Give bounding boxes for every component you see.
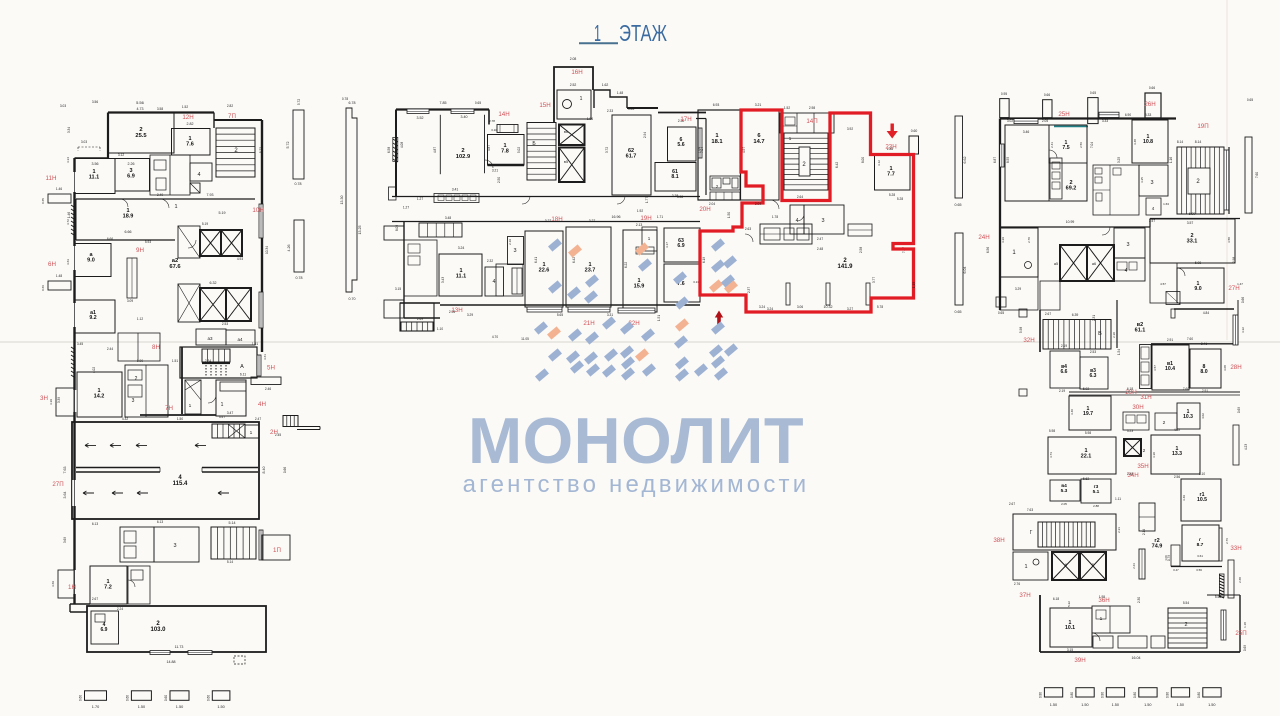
svg-text:2: 2: [135, 376, 138, 382]
svg-text:а4: а4: [237, 337, 243, 342]
svg-text:2.31: 2.31: [1092, 315, 1096, 321]
svg-text:11.1: 11.1: [456, 274, 466, 280]
svg-text:агентство недвижимости: агентство недвижимости: [463, 471, 810, 498]
svg-text:0.65: 0.65: [955, 310, 962, 314]
svg-text:0.80: 0.80: [1165, 692, 1169, 698]
svg-text:3.49: 3.49: [1182, 495, 1186, 501]
svg-text:1.95: 1.95: [1099, 595, 1105, 599]
svg-text:2.88: 2.88: [1093, 504, 1099, 508]
svg-text:3.15: 3.15: [395, 287, 401, 291]
svg-text:11.1: 11.1: [89, 175, 99, 181]
svg-text:3.61: 3.61: [1197, 554, 1203, 558]
svg-text:14.88: 14.88: [167, 660, 176, 664]
svg-text:8.7: 8.7: [1197, 542, 1204, 548]
svg-text:2.13: 2.13: [636, 223, 643, 227]
svg-text:1: 1: [1024, 564, 1027, 570]
svg-text:6.04: 6.04: [963, 267, 967, 274]
svg-text:0.69: 0.69: [1237, 407, 1241, 413]
svg-text:а3: а3: [207, 336, 213, 341]
svg-text:2: 2: [1184, 622, 1187, 628]
svg-text:3.57: 3.57: [1149, 219, 1155, 223]
svg-text:0.78: 0.78: [295, 182, 302, 186]
svg-text:3.63: 3.63: [66, 259, 70, 265]
svg-text:7.6: 7.6: [186, 142, 194, 148]
svg-text:2.04: 2.04: [709, 202, 715, 206]
svg-text:0.66: 0.66: [41, 285, 45, 291]
svg-text:39Н: 39Н: [1074, 657, 1085, 664]
svg-text:2.24: 2.24: [117, 607, 123, 611]
svg-text:5.93: 5.93: [145, 240, 151, 244]
svg-text:9Н: 9Н: [136, 247, 144, 254]
svg-text:21Н: 21Н: [583, 320, 594, 327]
svg-text:2.14: 2.14: [1142, 529, 1146, 535]
svg-text:5.14: 5.14: [227, 560, 233, 564]
svg-text:7.60: 7.60: [1183, 387, 1189, 391]
svg-text:19П: 19П: [1197, 123, 1208, 130]
svg-text:6Н: 6Н: [48, 261, 56, 268]
svg-text:10.4: 10.4: [1165, 366, 1175, 372]
svg-text:3.08: 3.08: [1223, 365, 1227, 371]
svg-text:0.66: 0.66: [1149, 86, 1155, 90]
svg-text:1.50: 1.50: [1050, 703, 1057, 707]
svg-text:4Н: 4Н: [258, 401, 266, 408]
svg-text:1: 1: [580, 96, 583, 102]
svg-text:3.33: 3.33: [1145, 113, 1152, 117]
svg-text:61.7: 61.7: [626, 154, 637, 160]
svg-text:2.19: 2.19: [508, 239, 512, 245]
svg-text:0.65: 0.65: [1247, 98, 1253, 102]
svg-text:10.8: 10.8: [1143, 139, 1153, 145]
svg-text:0.65: 0.65: [475, 101, 481, 105]
svg-text:Г: Г: [1030, 530, 1033, 536]
svg-text:5.19: 5.19: [219, 211, 226, 215]
svg-text:0.69: 0.69: [1243, 645, 1247, 651]
svg-text:5.72: 5.72: [259, 147, 263, 153]
svg-text:1: 1: [174, 204, 177, 210]
svg-text:4: 4: [197, 172, 200, 178]
svg-text:14.7: 14.7: [753, 139, 764, 145]
svg-text:2.67: 2.67: [1045, 312, 1051, 316]
svg-text:3.17: 3.17: [665, 242, 669, 248]
svg-text:26Н: 26Н: [1144, 101, 1155, 108]
svg-text:0.65: 0.65: [41, 198, 45, 204]
svg-text:3.48: 3.48: [1133, 139, 1137, 145]
svg-text:3: 3: [1150, 180, 1153, 186]
svg-text:3.29: 3.29: [1015, 287, 1021, 291]
svg-text:3: 3: [821, 218, 824, 224]
svg-text:25Н: 25Н: [1058, 111, 1069, 118]
svg-text:7.63: 7.63: [63, 467, 67, 474]
svg-text:67.6: 67.6: [169, 264, 181, 270]
svg-text:3.29: 3.29: [1001, 237, 1005, 243]
svg-text:2.48: 2.48: [817, 247, 823, 251]
svg-text:102.9: 102.9: [456, 154, 471, 160]
svg-text:14.2: 14.2: [94, 394, 105, 400]
svg-text:3.40: 3.40: [461, 115, 468, 119]
svg-text:2.68: 2.68: [1238, 577, 1242, 583]
svg-text:0.66: 0.66: [1241, 297, 1245, 303]
svg-text:2.67: 2.67: [92, 597, 98, 601]
svg-text:4.23: 4.23: [1244, 444, 1248, 450]
svg-text:3.03: 3.03: [60, 104, 66, 108]
svg-text:5.02: 5.02: [517, 147, 521, 153]
svg-text:13.25: 13.25: [358, 226, 362, 235]
svg-text:4.57: 4.57: [1160, 282, 1166, 286]
svg-text:3: 3: [173, 543, 176, 549]
svg-text:25.5: 25.5: [135, 133, 147, 139]
svg-text:10.32: 10.32: [824, 305, 833, 309]
svg-text:28Н: 28Н: [1230, 364, 1241, 371]
svg-text:2.76: 2.76: [1014, 582, 1020, 586]
svg-text:3.39: 3.39: [49, 399, 53, 405]
svg-text:3.41: 3.41: [452, 188, 459, 192]
svg-text:0.60: 0.60: [206, 695, 210, 701]
svg-text:31Н: 31Н: [1140, 394, 1151, 401]
svg-text:3.52: 3.52: [417, 116, 424, 120]
svg-text:8.40: 8.40: [262, 467, 266, 474]
svg-text:22.1: 22.1: [1081, 454, 1092, 460]
svg-text:6.62: 6.62: [963, 157, 967, 164]
svg-text:6.11: 6.11: [240, 373, 246, 377]
svg-text:4.02: 4.02: [1201, 413, 1205, 419]
svg-text:3.43: 3.43: [441, 277, 445, 283]
svg-text:1: 1: [221, 402, 224, 408]
svg-text:0.80: 0.80: [1197, 692, 1201, 698]
svg-text:6.58: 6.58: [387, 147, 391, 153]
svg-text:1.27: 1.27: [417, 197, 423, 201]
svg-text:3.56: 3.56: [1196, 568, 1202, 572]
svg-text:7.5: 7.5: [1062, 145, 1069, 151]
svg-text:2.53: 2.53: [1090, 350, 1096, 354]
svg-text:6.90: 6.90: [1125, 113, 1131, 117]
svg-text:2.41: 2.41: [1050, 142, 1054, 148]
svg-text:6.13: 6.13: [92, 522, 98, 526]
svg-text:16.96: 16.96: [612, 215, 621, 219]
svg-text:4: 4: [493, 279, 496, 285]
svg-text:7.2: 7.2: [104, 585, 112, 591]
svg-text:3.25: 3.25: [1117, 157, 1121, 163]
svg-text:3.03: 3.03: [81, 140, 87, 144]
svg-text:4.08: 4.08: [400, 142, 404, 148]
svg-text:38Н: 38Н: [993, 537, 1004, 544]
svg-text:5.02: 5.02: [1083, 387, 1089, 391]
svg-text:2.78: 2.78: [489, 119, 495, 123]
svg-text:0.65: 0.65: [1090, 91, 1096, 95]
svg-text:3.58: 3.58: [1227, 237, 1231, 243]
svg-text:6.18: 6.18: [1127, 387, 1133, 391]
svg-text:18Н: 18Н: [551, 216, 562, 223]
svg-text:16Н: 16Н: [571, 69, 582, 76]
svg-text:2.30: 2.30: [1112, 332, 1116, 338]
svg-text:13Н: 13Н: [451, 307, 462, 314]
svg-text:9.2: 9.2: [89, 315, 96, 321]
svg-text:6.87: 6.87: [993, 157, 997, 163]
svg-text:4.70: 4.70: [492, 335, 498, 339]
svg-text:33.1: 33.1: [1187, 239, 1198, 245]
svg-text:11.05: 11.05: [521, 337, 529, 341]
svg-text:2.82: 2.82: [227, 104, 233, 108]
svg-text:в5: в5: [564, 160, 568, 164]
svg-text:7Н: 7Н: [165, 405, 173, 412]
svg-text:2.48: 2.48: [1127, 472, 1133, 476]
svg-text:3.34: 3.34: [67, 127, 71, 133]
svg-text:0.66: 0.66: [1044, 93, 1050, 97]
svg-text:8.14: 8.14: [1177, 140, 1183, 144]
svg-text:в6: в6: [564, 130, 568, 134]
svg-text:2.31: 2.31: [1117, 527, 1121, 533]
svg-text:3.21: 3.21: [755, 103, 762, 107]
svg-text:6.99: 6.99: [1189, 212, 1196, 216]
svg-text:2.24: 2.24: [1132, 563, 1136, 569]
svg-text:2.76: 2.76: [1225, 538, 1229, 544]
svg-text:1.92: 1.92: [637, 209, 643, 213]
svg-text:32Н: 32Н: [1023, 337, 1034, 344]
svg-text:4.84: 4.84: [1203, 311, 1209, 315]
svg-text:0.60: 0.60: [164, 695, 168, 701]
svg-text:37Н: 37Н: [1019, 592, 1030, 599]
svg-text:6.22: 6.22: [624, 262, 628, 268]
svg-text:5.19: 5.19: [202, 222, 208, 226]
svg-text:2.56: 2.56: [1174, 475, 1180, 479]
svg-text:1.50: 1.50: [1177, 703, 1184, 707]
svg-text:2.91: 2.91: [1167, 338, 1173, 342]
svg-text:2.41: 2.41: [1201, 342, 1207, 346]
svg-text:1.70: 1.70: [92, 705, 99, 709]
svg-text:3.69: 3.69: [63, 537, 67, 543]
svg-text:10Н: 10Н: [252, 207, 263, 214]
svg-text:5.72: 5.72: [286, 142, 290, 149]
svg-text:3.12: 3.12: [877, 160, 881, 166]
svg-text:3.27: 3.27: [589, 219, 596, 223]
svg-text:0.66: 0.66: [283, 467, 287, 473]
svg-text:141.9: 141.9: [837, 264, 853, 270]
svg-text:4.93: 4.93: [237, 257, 243, 261]
svg-text:1Н: 1Н: [68, 584, 76, 591]
svg-text:3.02: 3.02: [1007, 119, 1013, 123]
svg-text:2: 2: [1143, 448, 1146, 454]
svg-text:8.0: 8.0: [1200, 369, 1207, 375]
svg-text:1.48: 1.48: [56, 274, 62, 278]
svg-text:8.00: 8.00: [861, 157, 865, 163]
svg-text:3.24: 3.24: [767, 307, 773, 311]
svg-text:3.40: 3.40: [1070, 409, 1074, 415]
svg-text:1: 1: [594, 20, 601, 46]
svg-text:3.27: 3.27: [847, 307, 853, 311]
svg-text:6.3: 6.3: [1090, 373, 1097, 379]
svg-text:1.50: 1.50: [217, 705, 224, 709]
svg-text:1.52: 1.52: [182, 105, 188, 109]
svg-text:7.63: 7.63: [1027, 508, 1033, 512]
svg-text:5.28: 5.28: [897, 197, 903, 201]
svg-text:22.6: 22.6: [539, 268, 550, 274]
svg-text:6.78: 6.78: [349, 101, 356, 105]
svg-text:3.31: 3.31: [607, 313, 613, 317]
svg-text:3.34: 3.34: [66, 157, 70, 163]
svg-text:14П: 14П: [806, 118, 817, 125]
svg-text:1.61: 1.61: [252, 342, 258, 346]
svg-text:11.73: 11.73: [175, 645, 184, 649]
svg-text:3.21: 3.21: [492, 169, 498, 173]
svg-text:2.91: 2.91: [1202, 389, 1208, 393]
svg-text:4.02: 4.02: [1174, 428, 1180, 432]
svg-text:7.7: 7.7: [887, 172, 895, 178]
svg-text:3.48: 3.48: [445, 216, 451, 220]
svg-text:10.99: 10.99: [1066, 220, 1075, 224]
svg-text:1.50: 1.50: [1208, 703, 1215, 707]
svg-text:3.10: 3.10: [1199, 472, 1205, 476]
svg-text:4.02: 4.02: [92, 367, 96, 373]
svg-text:8.1: 8.1: [671, 174, 678, 180]
svg-text:3.32: 3.32: [1241, 327, 1245, 333]
svg-text:27Н: 27Н: [1228, 285, 1239, 292]
svg-text:30Н: 30Н: [1132, 404, 1143, 411]
svg-text:2.58: 2.58: [859, 247, 863, 253]
svg-text:1.54: 1.54: [1117, 349, 1121, 355]
svg-text:1.11: 1.11: [1115, 497, 1121, 501]
svg-text:14Н: 14Н: [498, 111, 509, 118]
svg-text:24Н: 24Н: [978, 234, 989, 241]
svg-text:а6: а6: [1092, 262, 1096, 266]
svg-text:2.05: 2.05: [1042, 119, 1048, 123]
svg-text:1.77: 1.77: [645, 197, 649, 203]
svg-text:0.70: 0.70: [349, 297, 356, 301]
svg-text:15Н: 15Н: [539, 102, 550, 109]
svg-text:0.80: 0.80: [1133, 692, 1137, 698]
svg-text:3: 3: [1126, 242, 1129, 248]
svg-text:2: 2: [1163, 420, 1166, 426]
svg-text:33Н: 33Н: [1230, 545, 1241, 552]
svg-text:69.2: 69.2: [1066, 186, 1077, 192]
svg-text:0.78: 0.78: [296, 276, 303, 280]
svg-text:0.47: 0.47: [1173, 568, 1179, 572]
svg-text:3Н: 3Н: [40, 395, 48, 402]
svg-text:5.56: 5.56: [136, 100, 145, 105]
svg-text:6.66: 6.66: [125, 230, 132, 234]
svg-text:10.34: 10.34: [265, 246, 269, 254]
svg-text:1.18: 1.18: [1243, 622, 1247, 628]
svg-text:2.50: 2.50: [497, 177, 501, 183]
svg-text:а5: а5: [1054, 262, 1058, 266]
svg-text:0.95: 0.95: [1001, 92, 1007, 96]
svg-text:6.19: 6.19: [702, 257, 706, 263]
svg-text:6.9: 6.9: [677, 243, 684, 249]
svg-text:7.93: 7.93: [207, 193, 214, 197]
svg-text:8.55: 8.55: [1006, 157, 1010, 163]
svg-text:5.28: 5.28: [889, 193, 895, 197]
svg-text:1.50: 1.50: [177, 417, 183, 421]
svg-text:25П: 25П: [1235, 630, 1246, 637]
svg-text:2.63: 2.63: [745, 227, 751, 231]
svg-text:3.24: 3.24: [759, 305, 765, 309]
svg-text:2.67: 2.67: [1009, 502, 1015, 506]
svg-text:3.77: 3.77: [872, 277, 876, 283]
svg-text:7.04: 7.04: [1090, 142, 1094, 148]
svg-text:19.7: 19.7: [1083, 411, 1093, 417]
svg-text:6.56: 6.56: [986, 247, 990, 253]
svg-text:2.56: 2.56: [1079, 142, 1083, 148]
svg-text:А: А: [240, 364, 244, 370]
svg-text:1.15: 1.15: [912, 282, 916, 288]
svg-text:5.14: 5.14: [229, 521, 236, 525]
svg-text:2.37: 2.37: [747, 287, 751, 293]
svg-text:3.73: 3.73: [1049, 452, 1053, 458]
svg-text:1.46: 1.46: [67, 212, 71, 218]
svg-text:2.47: 2.47: [255, 417, 261, 421]
svg-text:2.32: 2.32: [487, 259, 493, 263]
svg-text:1.50: 1.50: [176, 705, 183, 709]
svg-text:6.6: 6.6: [1061, 369, 1068, 375]
svg-text:0.65: 0.65: [955, 203, 962, 207]
svg-text:4.87: 4.87: [433, 147, 437, 153]
svg-text:5.98: 5.98: [1019, 327, 1023, 333]
svg-text:6.18: 6.18: [1053, 597, 1059, 601]
svg-text:3.63: 3.63: [628, 107, 635, 111]
svg-text:1.78: 1.78: [772, 215, 778, 219]
svg-text:1.51: 1.51: [172, 359, 178, 363]
svg-text:5.65: 5.65: [557, 313, 563, 317]
svg-text:2.34: 2.34: [205, 359, 211, 363]
svg-text:2.52: 2.52: [570, 83, 577, 87]
svg-text:2.69: 2.69: [417, 317, 423, 321]
svg-text:6.9: 6.9: [127, 174, 135, 180]
svg-text:7.04: 7.04: [697, 147, 701, 153]
svg-text:20Н: 20Н: [699, 206, 710, 213]
svg-text:1.90: 1.90: [137, 359, 143, 363]
svg-text:3.13: 3.13: [693, 280, 699, 284]
svg-text:3.92: 3.92: [847, 127, 853, 131]
svg-text:3.38: 3.38: [677, 195, 683, 199]
svg-text:1.96: 1.96: [587, 117, 593, 121]
svg-text:2.40: 2.40: [157, 193, 163, 197]
svg-text:2.70: 2.70: [1027, 237, 1031, 243]
svg-text:3.33: 3.33: [1102, 119, 1108, 123]
svg-text:7.85: 7.85: [440, 101, 447, 105]
svg-text:35Н: 35Н: [1137, 463, 1148, 470]
svg-text:0.65: 0.65: [998, 311, 1004, 315]
svg-text:7.60: 7.60: [1255, 172, 1259, 178]
svg-text:23.7: 23.7: [585, 268, 596, 274]
svg-text:1.46: 1.46: [56, 187, 62, 191]
svg-text:115.4: 115.4: [173, 481, 188, 487]
svg-text:3.57: 3.57: [1187, 221, 1194, 225]
svg-text:4.26: 4.26: [287, 245, 291, 252]
svg-text:2.33: 2.33: [607, 109, 613, 113]
svg-text:6.42: 6.42: [835, 162, 839, 168]
svg-text:5.1: 5.1: [1093, 489, 1100, 495]
svg-text:10.3: 10.3: [1183, 414, 1193, 420]
svg-text:74.9: 74.9: [1152, 544, 1163, 550]
svg-text:3.25: 3.25: [1140, 177, 1144, 183]
svg-text:1.63: 1.63: [1163, 202, 1169, 206]
svg-text:1.16: 1.16: [1169, 157, 1173, 163]
svg-text:18.1: 18.1: [711, 139, 723, 145]
svg-text:3.24: 3.24: [458, 246, 465, 250]
svg-text:1.71: 1.71: [657, 215, 663, 219]
svg-text:5Н: 5Н: [267, 365, 275, 372]
svg-text:2.46: 2.46: [265, 387, 271, 391]
svg-text:3.47: 3.47: [227, 411, 234, 415]
svg-text:8.05: 8.05: [395, 225, 399, 231]
svg-text:6.66: 6.66: [107, 237, 113, 241]
svg-text:7П: 7П: [228, 113, 236, 120]
svg-text:1.52: 1.52: [784, 106, 790, 110]
svg-text:1: 1: [189, 403, 192, 409]
svg-text:3.72: 3.72: [66, 219, 70, 225]
svg-text:18.9: 18.9: [123, 214, 134, 220]
svg-text:1.12: 1.12: [137, 317, 143, 321]
svg-text:3: 3: [513, 248, 516, 254]
svg-text:6.39: 6.39: [1072, 313, 1079, 317]
